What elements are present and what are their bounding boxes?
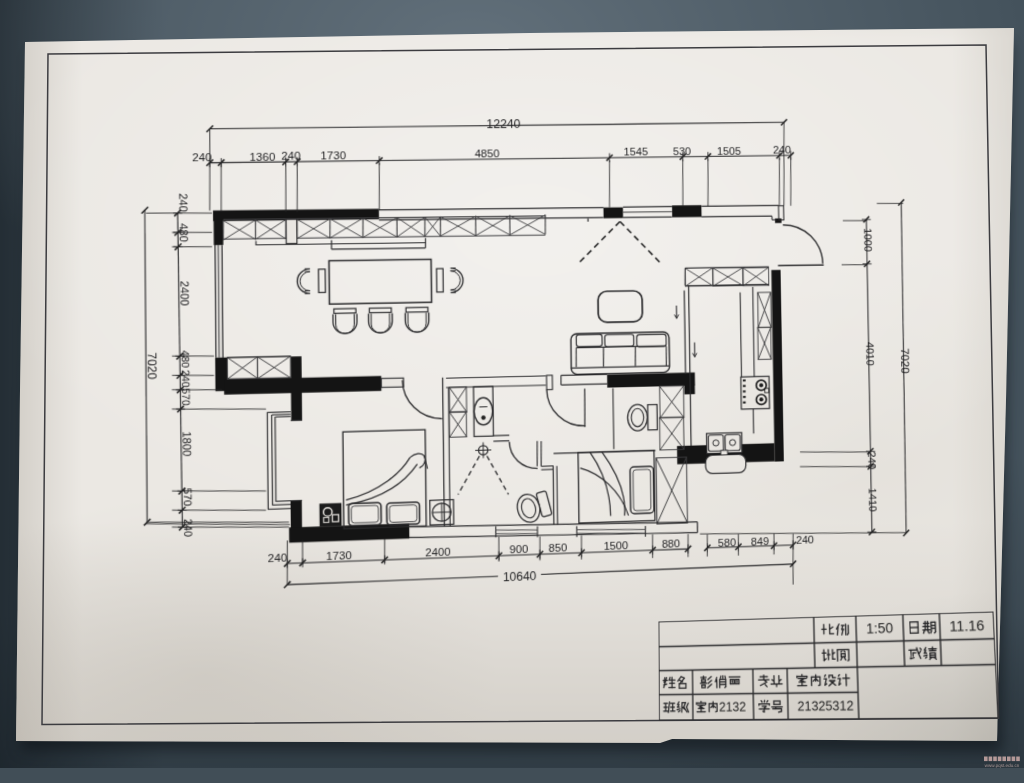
svg-text:www.pqst.edu.cn: www.pqst.edu.cn	[985, 763, 1020, 768]
